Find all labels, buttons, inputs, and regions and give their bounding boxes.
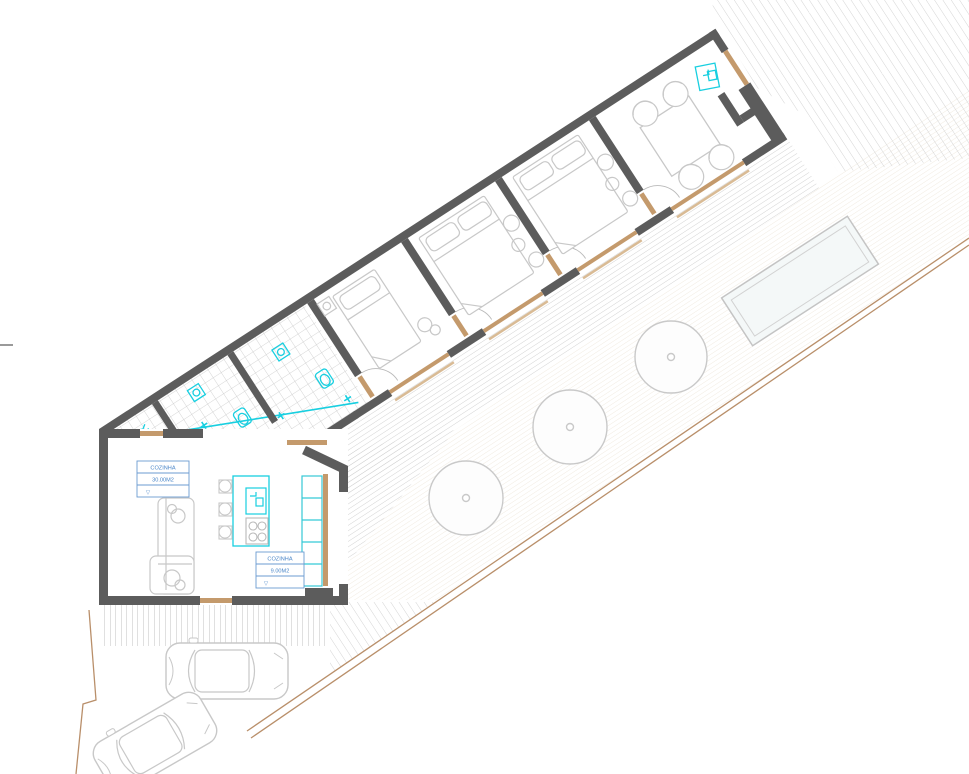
bar-chairs	[219, 480, 232, 539]
room-label-text: COZINHA	[150, 466, 175, 472]
living-block: COZINHA 30.00M2 ▽ COZINHA 9.00M2 ▽	[99, 429, 348, 605]
bottom-deck-stripes	[100, 602, 330, 646]
room-label-arrow: ▽	[146, 490, 151, 496]
room-label-text: COZINHA	[267, 557, 292, 563]
room-area-text: 9.00M2	[271, 569, 290, 575]
kitchen-island	[219, 476, 269, 546]
label-cozinha-2: COZINHA 9.00M2 ▽	[256, 552, 304, 588]
room-area-text: 30.00M2	[152, 478, 174, 484]
tree-icon	[533, 390, 607, 464]
junction-window	[287, 440, 327, 445]
tree-icon	[429, 461, 503, 535]
room-label-arrow: ▽	[264, 581, 269, 587]
floor-plan-canvas: COZINHA 30.00M2 ▽ COZINHA 9.00M2 ▽	[0, 0, 969, 774]
label-cozinha-1: COZINHA 30.00M2 ▽	[137, 461, 189, 497]
floor-plan-drawing: COZINHA 30.00M2 ▽ COZINHA 9.00M2 ▽	[0, 0, 969, 774]
tree-icon	[635, 321, 707, 393]
